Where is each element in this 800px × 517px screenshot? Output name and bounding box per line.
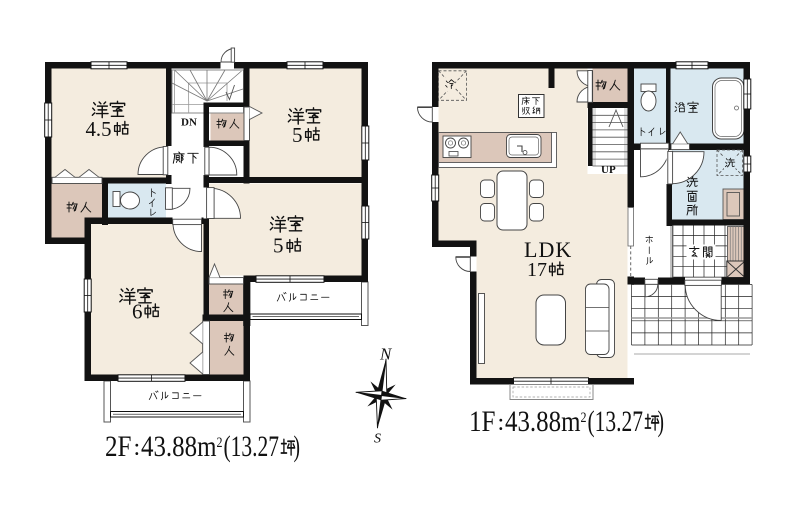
svg-text:UP: UP [601, 164, 616, 176]
svg-text:17: 17 [527, 259, 547, 281]
svg-text:): ) [294, 430, 301, 463]
svg-text:2: 2 [581, 410, 587, 426]
svg-text:(13.27: (13.27 [588, 405, 644, 438]
svg-text:S: S [374, 432, 381, 447]
svg-text::: : [134, 435, 141, 461]
svg-text:DN: DN [181, 117, 197, 129]
svg-text:4.5: 4.5 [86, 117, 112, 141]
svg-text:N: N [379, 345, 393, 364]
svg-text:(13.27: (13.27 [224, 430, 280, 463]
svg-text:): ) [658, 405, 665, 438]
svg-text:43.88m: 43.88m [505, 405, 581, 438]
svg-text:2F: 2F [105, 430, 132, 463]
svg-text::: : [498, 410, 505, 436]
svg-text:5: 5 [292, 123, 303, 147]
svg-text:1F: 1F [469, 405, 496, 438]
svg-text:2: 2 [217, 435, 223, 451]
svg-text:6: 6 [132, 300, 143, 324]
svg-text:43.88m: 43.88m [141, 430, 217, 463]
svg-text:5: 5 [273, 234, 284, 258]
